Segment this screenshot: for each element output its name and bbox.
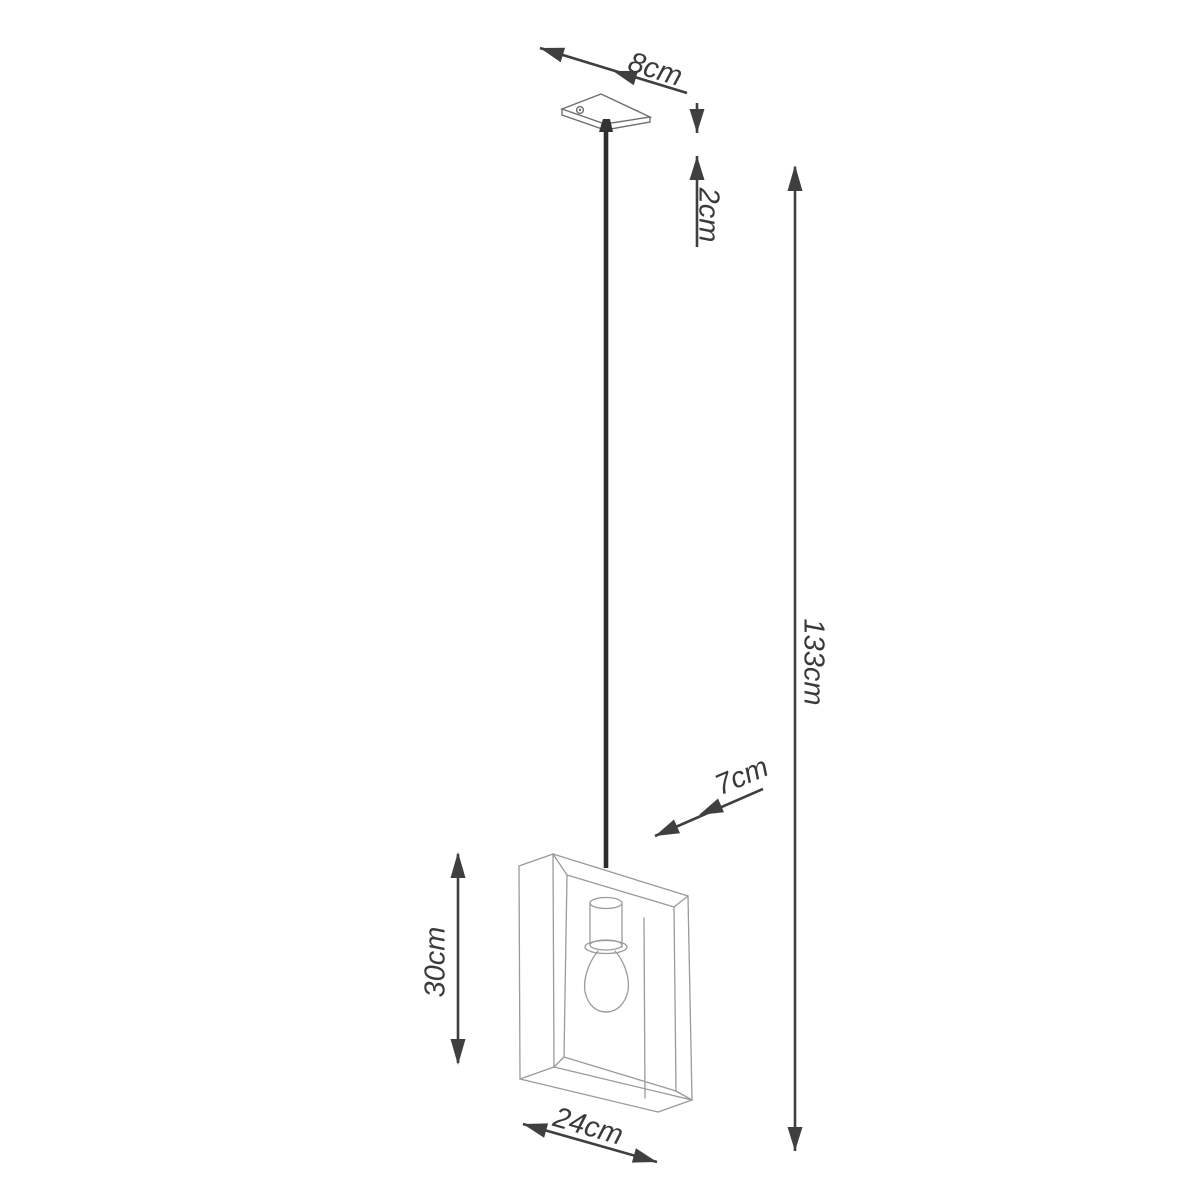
bulb-socket [585,898,627,954]
arrowhead-icon [655,820,680,837]
dimension-frame-depth [655,789,763,836]
diagram-canvas [0,0,1200,1200]
cable-strain-relief [599,119,613,132]
arrowhead-icon [632,1148,657,1162]
arrowhead-icon [451,852,466,878]
arrowhead-icon [451,1039,466,1065]
pendant-cable [599,119,613,868]
arrowhead-icon [540,48,565,62]
arrowhead-icon [523,1123,548,1137]
dimension-frame-height [451,852,466,1065]
frame-shade-wireframe [519,854,692,1112]
canopy-screw-icon [577,107,584,114]
arrowhead-icon [690,156,705,180]
frame-height-label: 30cm [420,927,453,998]
arrowhead-icon [788,165,803,191]
arrowhead-icon [699,799,724,816]
dimension-diagram: 8cm 2cm 133cm 7cm 30cm 24cm [0,0,1200,1200]
arrowhead-icon [690,109,705,133]
arrowhead-icon [788,1127,803,1151]
light-bulb [585,951,629,1012]
overall-height-label: 133cm [797,618,830,705]
canopy-height-label: 2cm [692,188,725,243]
